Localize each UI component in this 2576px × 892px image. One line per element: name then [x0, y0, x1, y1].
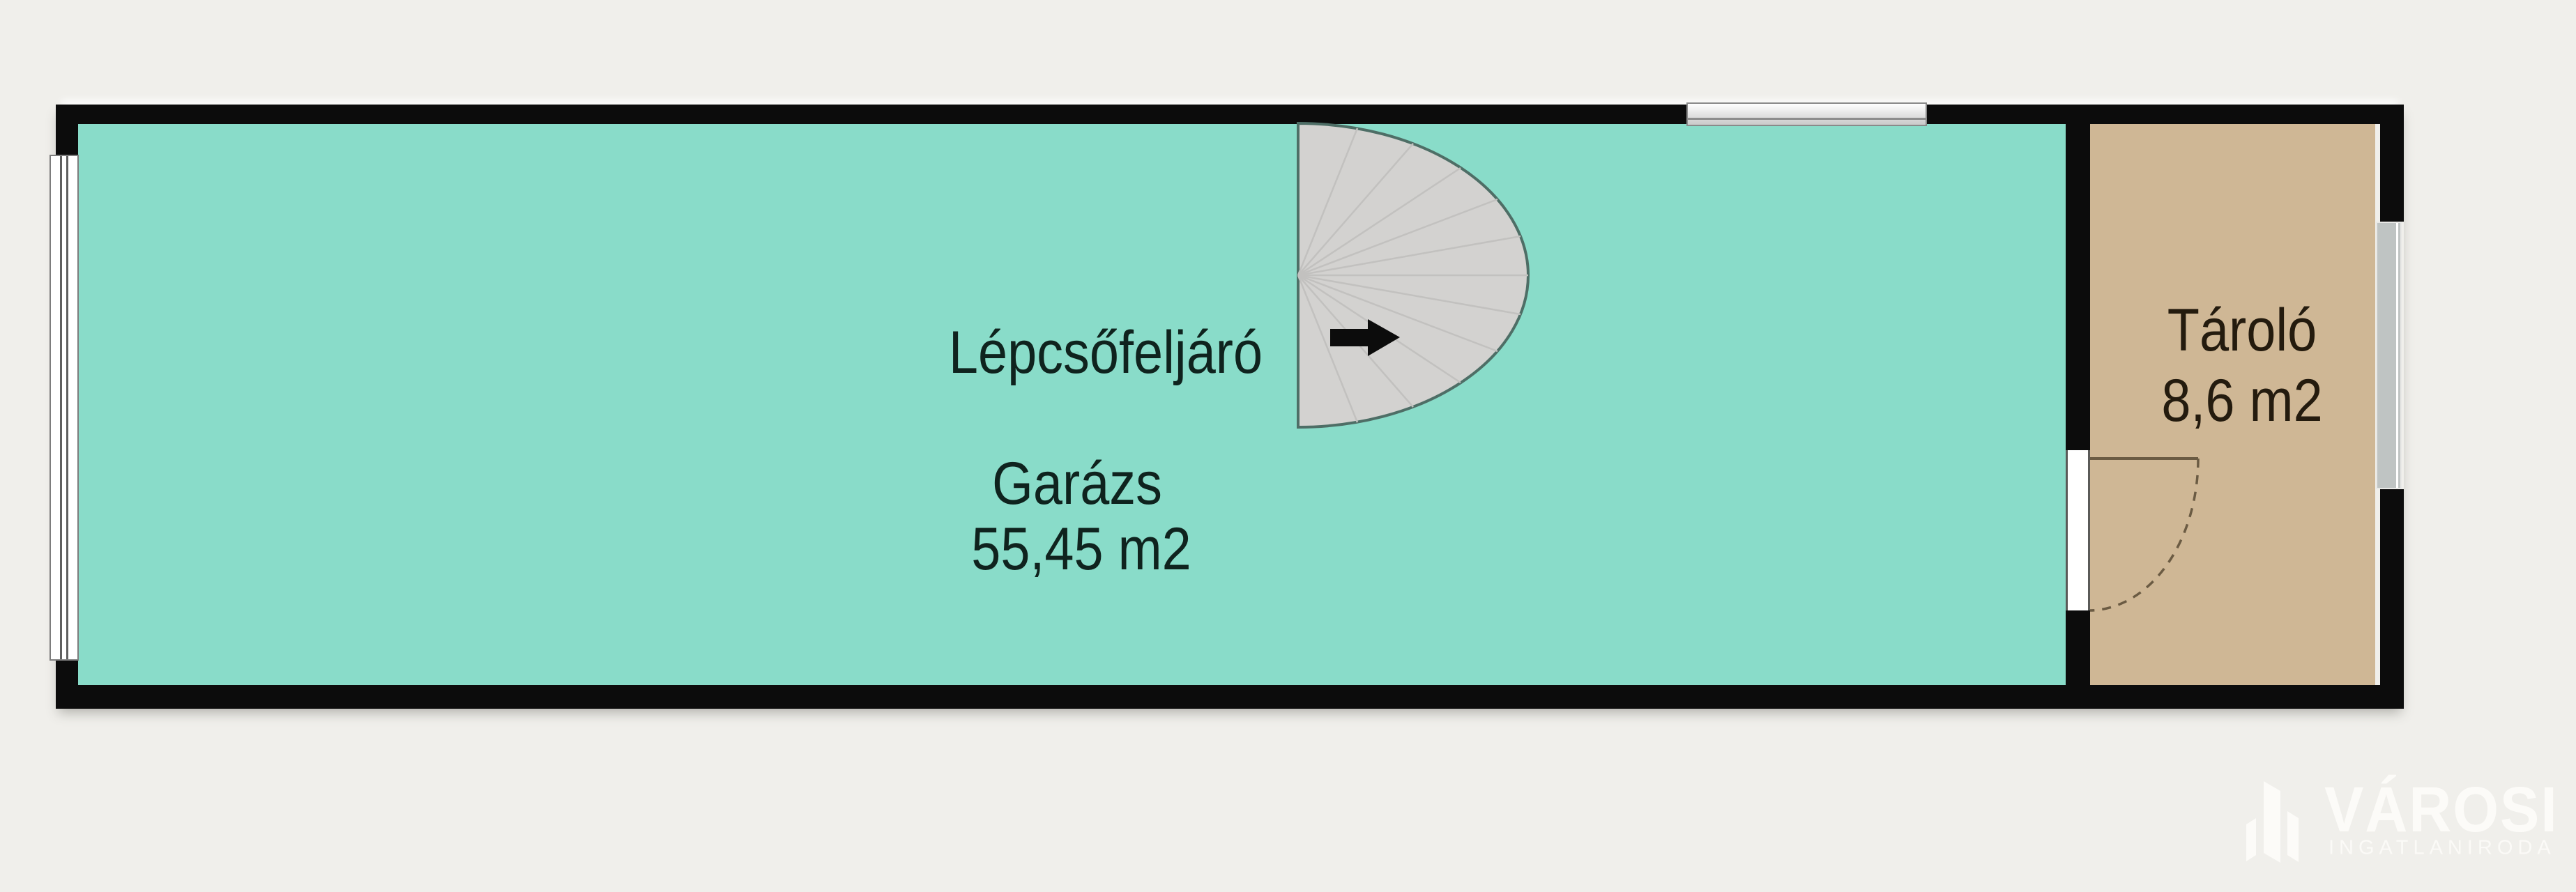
watermark-title: VÁROSI — [2324, 778, 2559, 842]
vector-overlay — [0, 0, 2576, 892]
building-icon — [2246, 781, 2299, 863]
floorplan-canvas: Lépcsőfeljáró Garázs 55,45 m2 Tároló 8,6… — [0, 0, 2576, 892]
door-swing-arc — [2090, 459, 2198, 610]
stair-label: Lépcsőfeljáró — [949, 323, 1263, 383]
garage-area: 55,45 m2 — [971, 519, 1191, 579]
storage-door — [2090, 459, 2198, 610]
garage-label: Garázs — [992, 454, 1162, 514]
watermark-subtitle: INGATLANIRODA — [2329, 838, 2556, 859]
storage-area: 8,6 m2 — [2161, 371, 2322, 431]
storage-label: Tároló — [2167, 300, 2317, 360]
spiral-stair — [1298, 123, 1528, 427]
